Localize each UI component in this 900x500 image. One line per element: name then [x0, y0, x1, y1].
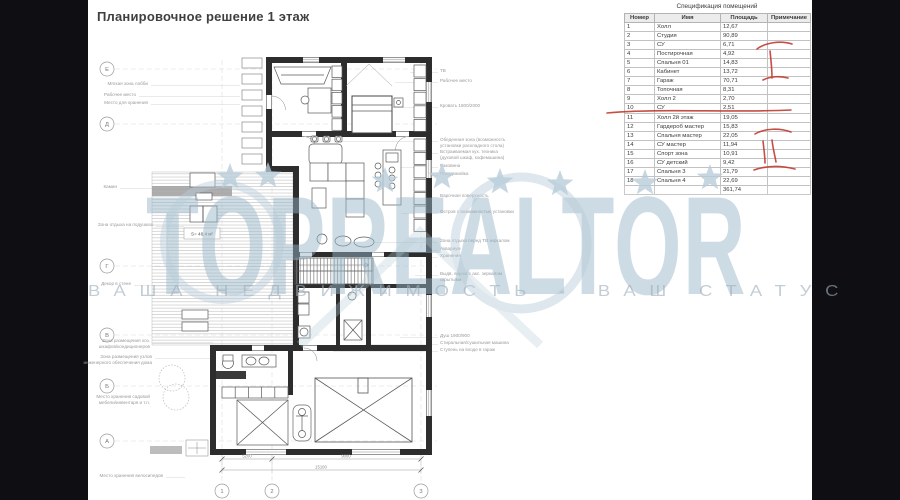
table-row: 12Гардероб мастер15,83	[625, 122, 811, 131]
screenshot-stage: ЕДГВБА123 S= 48,4 м²	[0, 0, 900, 500]
plan-annotation: Место хранения садовоймебели/инвентаря и…	[96, 394, 150, 406]
plan-annotation: Зона размещения хоз.шкафов/кондиционеров	[99, 338, 150, 350]
table-row: 13Спальня мастер22,05	[625, 131, 811, 140]
spec-column-header: Номер	[625, 14, 655, 23]
table-row: 10СУ2,51	[625, 104, 811, 113]
spec-column-header: Примечание	[768, 14, 811, 23]
plan-annotation: Место для хранения	[104, 100, 148, 106]
plan-annotation: Зона отдыха перед ТВ зеркалом	[440, 238, 510, 244]
plan-annotation: Варочная поверхность	[440, 193, 489, 199]
spec-column-header: Имя	[655, 14, 721, 23]
table-row: 9Холл 22,70	[625, 95, 811, 104]
table-row: 1Холл12,67	[625, 22, 811, 31]
table-row: 4Постирочная4,92	[625, 49, 811, 58]
plan-annotation: Мягкая зона лобби	[107, 81, 148, 87]
plan-annotation: Зона отдыха на подушках	[98, 222, 153, 228]
spec-table-body: 1Холл12,672Студия90,893СУ6,714Постирочна…	[625, 22, 811, 195]
spec-table-title: Спецификация помещений	[624, 3, 810, 10]
page-title: Планировочное решение 1 этаж	[97, 9, 309, 24]
table-row: 5Спальня 0114,83	[625, 58, 811, 67]
table-row: 17Спальня 321,79	[625, 168, 811, 177]
table-row: 16СУ детский9,42	[625, 159, 811, 168]
spec-header-row: НомерИмяПлощадьПримечание	[625, 14, 811, 23]
plan-annotation: Остров с возможностью установки	[440, 209, 514, 215]
plan-annotation: Стиральная/сушильная машина	[440, 340, 509, 346]
table-row: 14СУ мастер11,94	[625, 140, 811, 149]
plan-annotation: Обеденная зона (возможностьустановки рас…	[440, 137, 505, 149]
plan-annotation: Место хранения велосипедов	[99, 473, 163, 479]
plan-annotation: Камин	[104, 184, 118, 190]
table-row: 6Кабинет13,72	[625, 68, 811, 77]
plan-annotation: Рабочее место	[104, 92, 136, 98]
plan-annotation: Декор в стене	[101, 281, 131, 287]
table-row: 2Студия90,89	[625, 31, 811, 40]
plan-annotation: Выдв. ящики с акс. зеркаломскрытыми	[440, 271, 502, 283]
table-row: 3СУ6,71	[625, 40, 811, 49]
plan-annotation: Рабочее место	[440, 78, 472, 84]
plan-annotation: Хранение	[440, 253, 461, 259]
table-row: 11Холл 2й этаж19,05	[625, 113, 811, 122]
spec-column-header: Площадь	[721, 14, 768, 23]
plan-annotation: Встраиваемая кух. техника(духовой шкаф, …	[440, 149, 504, 161]
table-row: 8Топочная8,31	[625, 86, 811, 95]
plan-annotation: Зона размещения узловинженерного обеспеч…	[83, 354, 152, 366]
table-row: 15Спорт зона10,91	[625, 149, 811, 158]
room-spec-table: Спецификация помещений НомерИмяПлощадьПр…	[624, 3, 810, 195]
plan-annotation: Раковина	[440, 163, 460, 169]
plan-annotation: ТВ	[440, 68, 446, 74]
plan-annotation: Ступень на входе в гараж	[440, 347, 495, 353]
table-row: 18Спальня 422,69	[625, 177, 811, 186]
plan-annotation: Душ 1900/900	[440, 333, 470, 339]
table-row: 7Гараж70,71	[625, 77, 811, 86]
table-total-row: 361,74	[625, 186, 811, 195]
plan-annotation: Аквариум	[440, 246, 461, 252]
plan-annotation: Посудомойка	[440, 171, 468, 177]
plan-annotation: Кровать 1800/2000	[440, 103, 480, 109]
